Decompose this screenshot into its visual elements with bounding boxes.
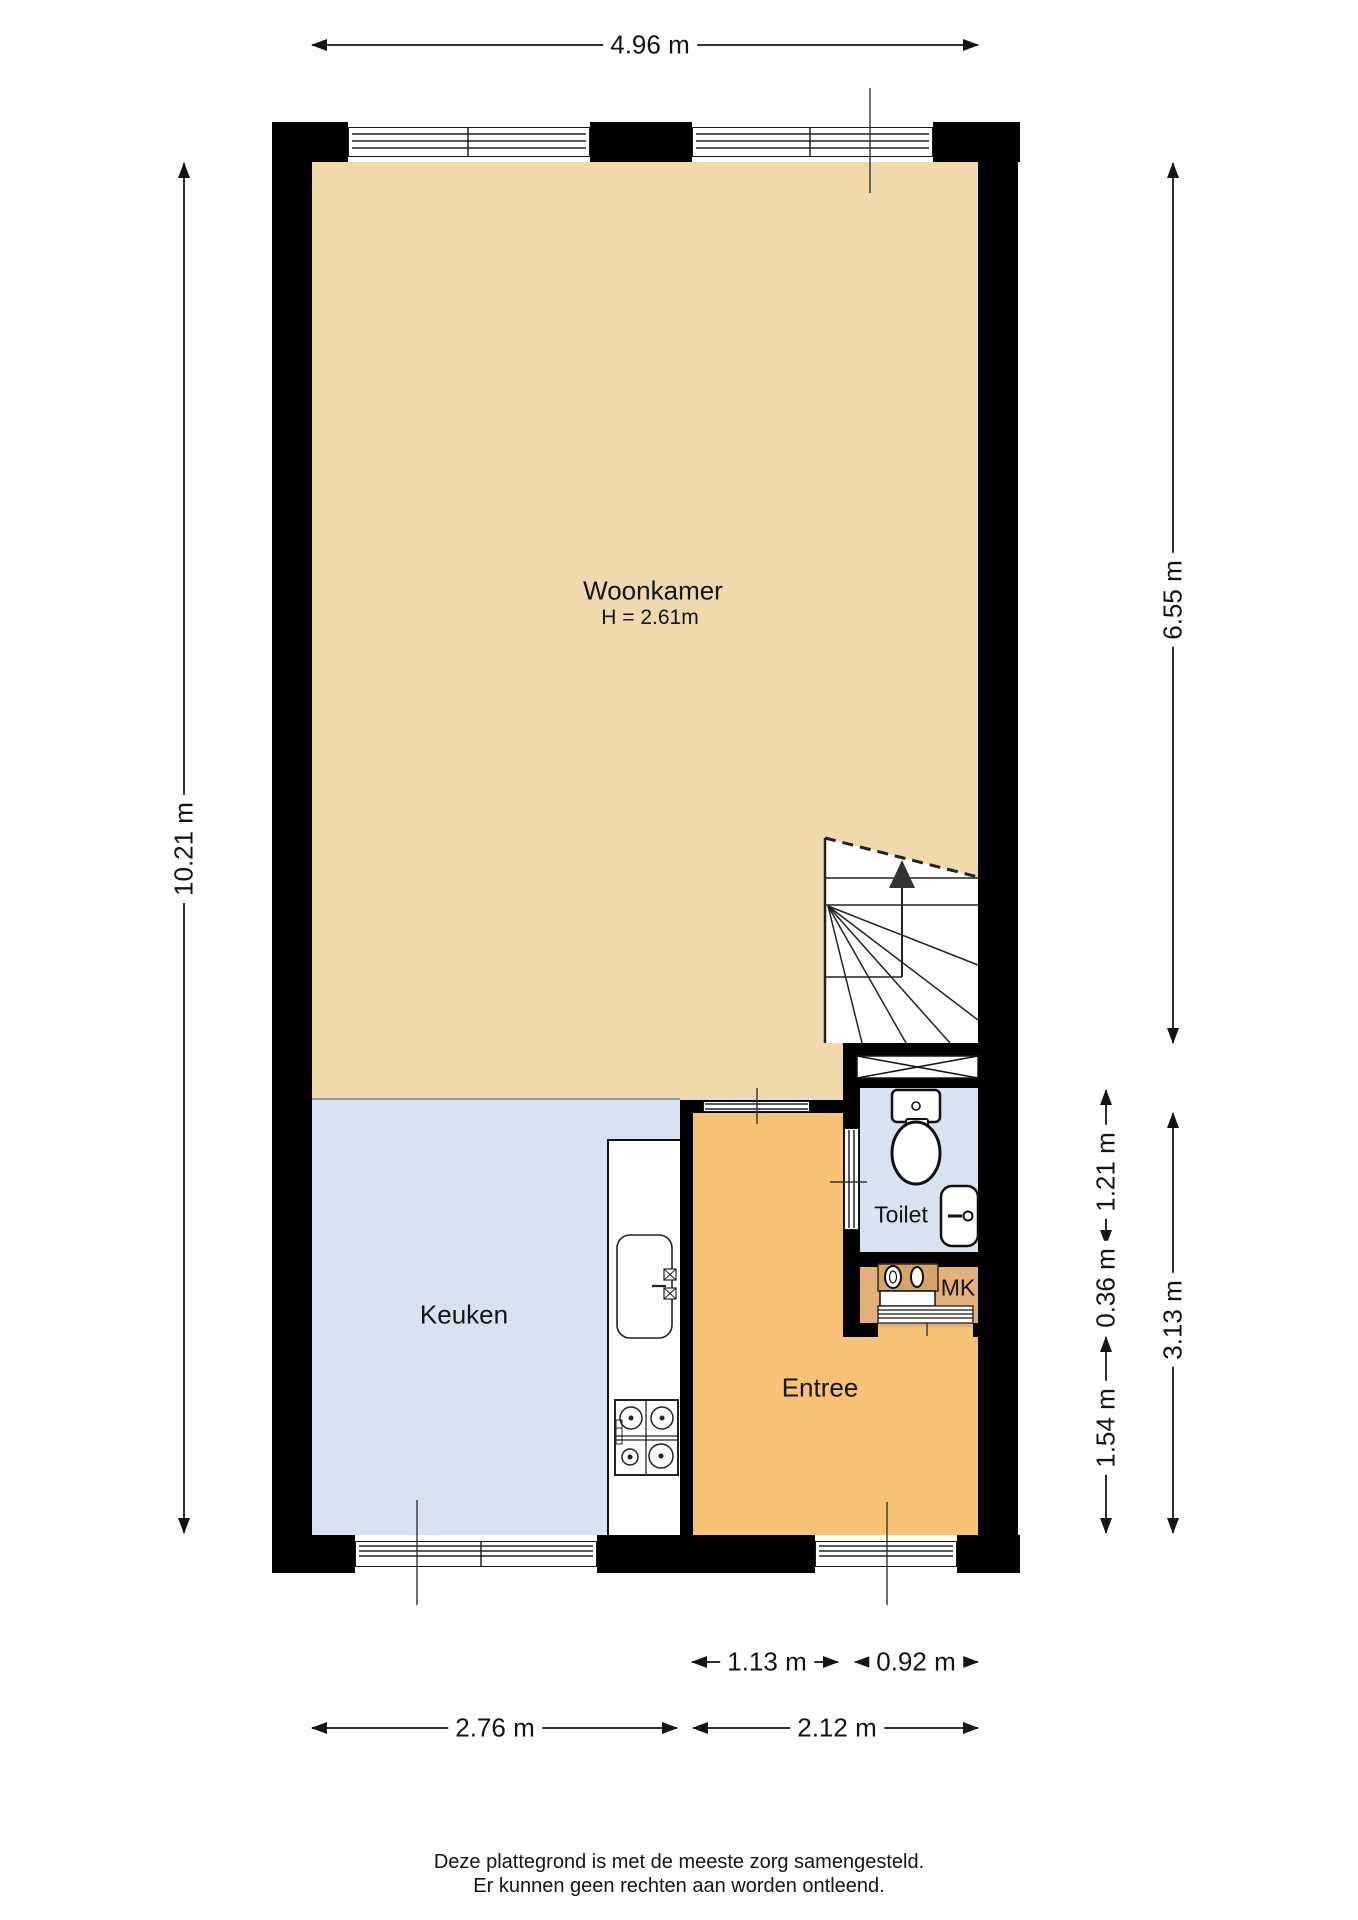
dimension-label-hall-depth: 1.54 m <box>1091 1381 1122 1475</box>
keuken-woonkamer-divider <box>312 1098 680 1100</box>
dimension-label-door-width: 1.13 m <box>720 1647 814 1678</box>
floor-entree-main <box>693 1113 843 1535</box>
room-label-keuken: Keuken <box>420 1300 508 1331</box>
wall-bottom-left <box>272 1535 355 1573</box>
wall-mk-bottom-right <box>973 1323 980 1337</box>
wall-right <box>978 122 1018 1573</box>
room-label-woonkamer: Woonkamer <box>583 576 723 607</box>
dimension-label-right-lower: 3.13 m <box>1158 1273 1189 1367</box>
wall-stairs-bottom <box>843 1043 978 1056</box>
window-interior-woonkamer <box>703 1101 810 1112</box>
floor-woonkamer <box>312 162 978 1113</box>
room-label-toilet: Toilet <box>874 1202 928 1229</box>
room-label-mk: MK <box>941 1275 976 1302</box>
window-top-right <box>692 127 933 157</box>
dimension-label-mk-depth: 0.36 m <box>1091 1241 1122 1335</box>
dimension-label-left-height: 10.21 m <box>169 795 200 903</box>
dimension-label-right-upper: 6.55 m <box>1158 553 1189 647</box>
floor-entree-right <box>843 1337 978 1535</box>
door-toilet <box>844 1128 859 1230</box>
kitchen-counter <box>607 1139 680 1535</box>
wall-toilet-bottom <box>843 1252 978 1267</box>
footer-disclaimer-line2: Er kunnen geen rechten aan worden ontlee… <box>473 1875 884 1898</box>
room-label-entree: Entree <box>782 1373 859 1404</box>
floorplan-page: Woonkamer H = 2.61m Keuken Entree Toilet… <box>0 0 1358 1920</box>
wall-bottom-middle <box>597 1535 815 1573</box>
wall-toilet-top <box>857 1078 978 1088</box>
footer-disclaimer-line1: Deze plattegrond is met de meeste zorg s… <box>434 1851 924 1874</box>
dimension-label-toilet-depth: 1.21 m <box>1091 1125 1122 1219</box>
window-top-left <box>348 127 590 157</box>
wall-top-middle <box>590 122 692 162</box>
room-height-label-woonkamer: H = 2.61m <box>601 606 698 630</box>
window-keuken <box>355 1541 597 1567</box>
dimension-label-toilet-width: 0.92 m <box>869 1647 963 1678</box>
wall-left <box>272 122 312 1573</box>
dimension-label-top-width: 4.96 m <box>603 30 697 61</box>
dimension-label-keuken-width: 2.76 m <box>448 1713 542 1744</box>
wall-bottom-right <box>957 1535 1020 1573</box>
front-door <box>815 1541 957 1567</box>
dimension-label-entree-width: 2.12 m <box>790 1713 884 1744</box>
wall-mk-bottom-left <box>843 1323 878 1337</box>
wall-keuken-entree <box>680 1100 693 1535</box>
